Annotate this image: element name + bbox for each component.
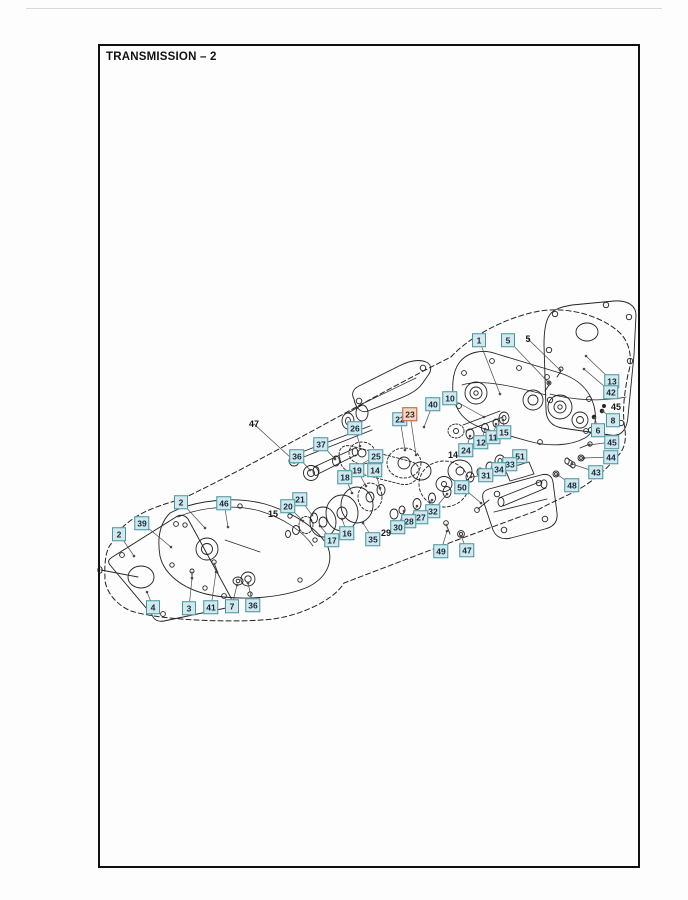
callout-45[interactable]: 45 xyxy=(604,435,619,449)
right-housing xyxy=(453,351,596,444)
callout-23[interactable]: 23 xyxy=(402,407,417,421)
callout-26[interactable]: 26 xyxy=(347,421,362,435)
callout-45: 45 xyxy=(609,401,623,413)
callout-10[interactable]: 10 xyxy=(442,391,457,405)
callout-6[interactable]: 6 xyxy=(591,423,605,437)
callout-44[interactable]: 44 xyxy=(603,450,618,464)
callout-3[interactable]: 3 xyxy=(182,601,196,615)
callout-47[interactable]: 47 xyxy=(459,543,474,557)
callout-25[interactable]: 25 xyxy=(368,449,383,463)
callout-40[interactable]: 40 xyxy=(425,397,440,411)
callout-8[interactable]: 8 xyxy=(606,413,620,427)
callout-14[interactable]: 14 xyxy=(367,463,382,477)
callout-2[interactable]: 2 xyxy=(174,495,188,509)
callout-5[interactable]: 5 xyxy=(501,333,515,347)
callout-15[interactable]: 15 xyxy=(496,425,511,439)
callout-49[interactable]: 49 xyxy=(433,544,448,558)
callout-36[interactable]: 36 xyxy=(245,598,260,612)
callout-5: 5 xyxy=(522,333,534,345)
callout-41[interactable]: 41 xyxy=(203,600,218,614)
callout-20[interactable]: 20 xyxy=(280,499,295,513)
callout-18[interactable]: 18 xyxy=(337,470,352,484)
callout-15: 15 xyxy=(266,508,280,520)
callout-42[interactable]: 42 xyxy=(603,385,618,399)
callout-37[interactable]: 37 xyxy=(313,437,328,451)
callout-24[interactable]: 24 xyxy=(458,443,473,457)
callout-43[interactable]: 43 xyxy=(588,465,603,479)
callout-7[interactable]: 7 xyxy=(225,599,239,613)
callout-2[interactable]: 2 xyxy=(112,527,126,541)
callout-50[interactable]: 50 xyxy=(454,480,469,494)
left-cover xyxy=(159,500,330,598)
callout-31[interactable]: 31 xyxy=(478,468,493,482)
exploded-drawing xyxy=(0,0,688,900)
leader-lines xyxy=(119,339,613,608)
callout-16[interactable]: 16 xyxy=(339,526,354,540)
callout-14: 14 xyxy=(446,449,460,461)
callout-1[interactable]: 1 xyxy=(472,333,486,347)
callout-4[interactable]: 4 xyxy=(146,600,160,614)
callout-36[interactable]: 36 xyxy=(289,449,304,463)
callout-39[interactable]: 39 xyxy=(134,516,149,530)
callout-48[interactable]: 48 xyxy=(564,478,579,492)
callout-46[interactable]: 46 xyxy=(216,496,231,510)
callout-47: 47 xyxy=(247,418,261,430)
callout-29: 29 xyxy=(379,527,393,539)
callout-17[interactable]: 17 xyxy=(324,533,339,547)
